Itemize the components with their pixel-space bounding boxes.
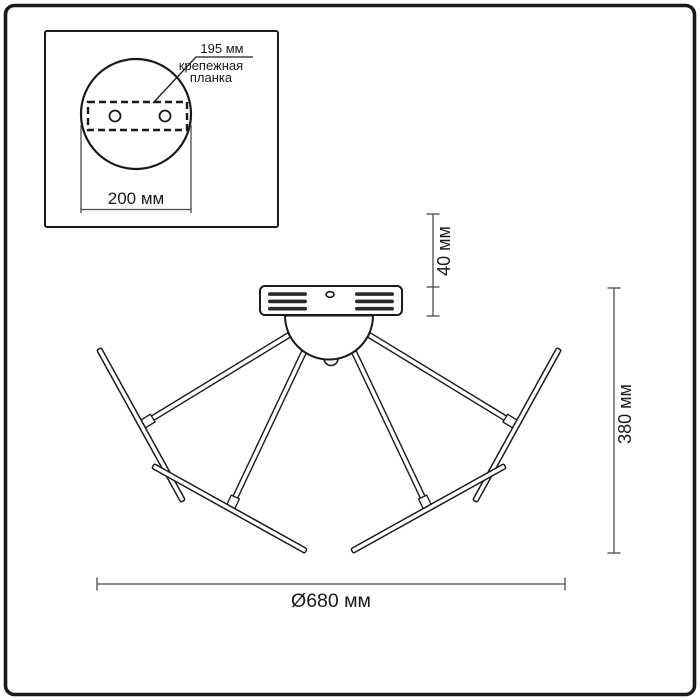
light-bars bbox=[97, 348, 561, 553]
plate-name-line2: планка bbox=[190, 70, 233, 85]
dimension-380mm: 380 мм bbox=[608, 288, 636, 553]
arm-left-outer bbox=[147, 333, 291, 423]
screw-hole-left bbox=[110, 111, 121, 122]
chandelier-dimension-drawing: 195 мм крепежная планка 200 мм bbox=[0, 0, 700, 700]
dimension-40mm: 40 мм bbox=[427, 214, 455, 316]
ceiling-canopy bbox=[260, 286, 402, 315]
canopy-height-label: 40 мм bbox=[434, 226, 454, 276]
total-height-label: 380 мм bbox=[615, 384, 635, 444]
mounting-plate-dashed-rect bbox=[88, 102, 187, 130]
mounting-detail-inset: 195 мм крепежная планка 200 мм bbox=[45, 31, 278, 227]
light-bar-left-inner bbox=[152, 464, 307, 553]
arm-left-inner bbox=[231, 351, 306, 503]
vent-slot bbox=[355, 300, 394, 304]
canopy-base-circle bbox=[81, 59, 191, 169]
light-bar-right-inner bbox=[351, 464, 506, 553]
plate-width-label: 195 мм bbox=[200, 41, 243, 56]
screw-hole-right bbox=[160, 111, 171, 122]
vent-slot bbox=[268, 292, 307, 296]
total-diameter-label: Ø680 мм bbox=[291, 590, 371, 612]
vent-slot bbox=[268, 307, 307, 311]
dimension-680mm: Ø680 мм bbox=[97, 578, 565, 613]
arm-right-outer bbox=[368, 333, 512, 423]
chandelier-front-view bbox=[97, 286, 561, 553]
cable-hole bbox=[326, 292, 334, 298]
base-diameter-label: 200 мм bbox=[108, 189, 164, 208]
arm-connectors bbox=[141, 414, 517, 509]
dome bbox=[285, 316, 373, 360]
arm-right-inner bbox=[352, 351, 427, 503]
vent-slot bbox=[268, 300, 307, 304]
vent-slot bbox=[355, 292, 394, 296]
vent-slot bbox=[355, 307, 394, 311]
